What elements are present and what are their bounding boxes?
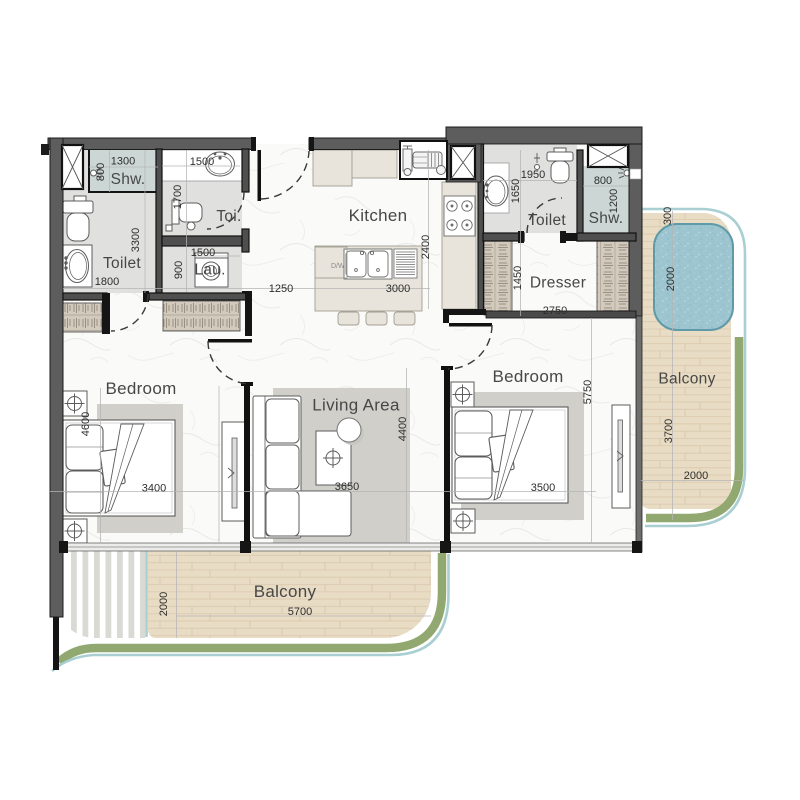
svg-text:Toi.: Toi. <box>216 208 241 225</box>
svg-text:800: 800 <box>594 175 612 187</box>
svg-text:3500: 3500 <box>531 482 555 494</box>
svg-text:Dresser: Dresser <box>530 275 586 292</box>
svg-text:Balcony: Balcony <box>658 371 715 388</box>
svg-text:3000: 3000 <box>386 283 410 295</box>
svg-text:1950: 1950 <box>521 169 545 181</box>
svg-text:1650: 1650 <box>510 179 522 203</box>
svg-text:2750: 2750 <box>543 305 567 317</box>
svg-text:Toilet: Toilet <box>103 255 141 272</box>
svg-text:Toilet: Toilet <box>528 212 566 229</box>
svg-text:1500: 1500 <box>190 156 214 168</box>
svg-text:1700: 1700 <box>172 185 184 209</box>
svg-text:Bedroom: Bedroom <box>105 379 176 398</box>
svg-text:Shw.: Shw. <box>111 171 146 188</box>
svg-text:1250: 1250 <box>269 283 293 295</box>
svg-text:3400: 3400 <box>142 483 166 495</box>
svg-text:Living Area: Living Area <box>312 396 400 415</box>
svg-text:2400: 2400 <box>420 235 432 259</box>
svg-text:D/W: D/W <box>331 263 345 270</box>
svg-text:1450: 1450 <box>512 266 524 290</box>
svg-text:900: 900 <box>173 261 185 279</box>
svg-text:4400: 4400 <box>397 417 409 441</box>
svg-text:Balcony: Balcony <box>254 582 317 601</box>
svg-text:5750: 5750 <box>582 380 594 404</box>
svg-text:Bedroom: Bedroom <box>492 367 563 386</box>
svg-text:3650: 3650 <box>335 481 359 493</box>
svg-text:1200: 1200 <box>608 189 620 213</box>
svg-text:1800: 1800 <box>95 276 119 288</box>
svg-text:800: 800 <box>95 163 107 181</box>
svg-text:300: 300 <box>662 207 674 225</box>
svg-text:2000: 2000 <box>684 470 708 482</box>
svg-text:Lau.: Lau. <box>194 262 225 279</box>
svg-text:1300: 1300 <box>111 156 135 168</box>
svg-text:5700: 5700 <box>288 606 312 618</box>
svg-text:2000: 2000 <box>158 592 170 616</box>
svg-text:3700: 3700 <box>663 419 675 443</box>
svg-text:Kitchen: Kitchen <box>349 206 408 225</box>
svg-text:3300: 3300 <box>130 228 142 252</box>
svg-text:2000: 2000 <box>665 267 677 291</box>
svg-text:4600: 4600 <box>80 412 92 436</box>
svg-text:1500: 1500 <box>191 247 215 259</box>
